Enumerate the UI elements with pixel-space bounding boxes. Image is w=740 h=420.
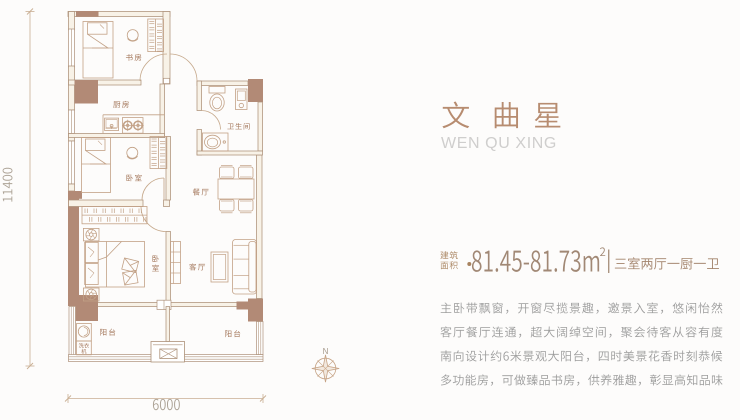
svg-text:N: N	[323, 347, 329, 356]
svg-text:WEN QU XING: WEN QU XING	[441, 135, 557, 152]
